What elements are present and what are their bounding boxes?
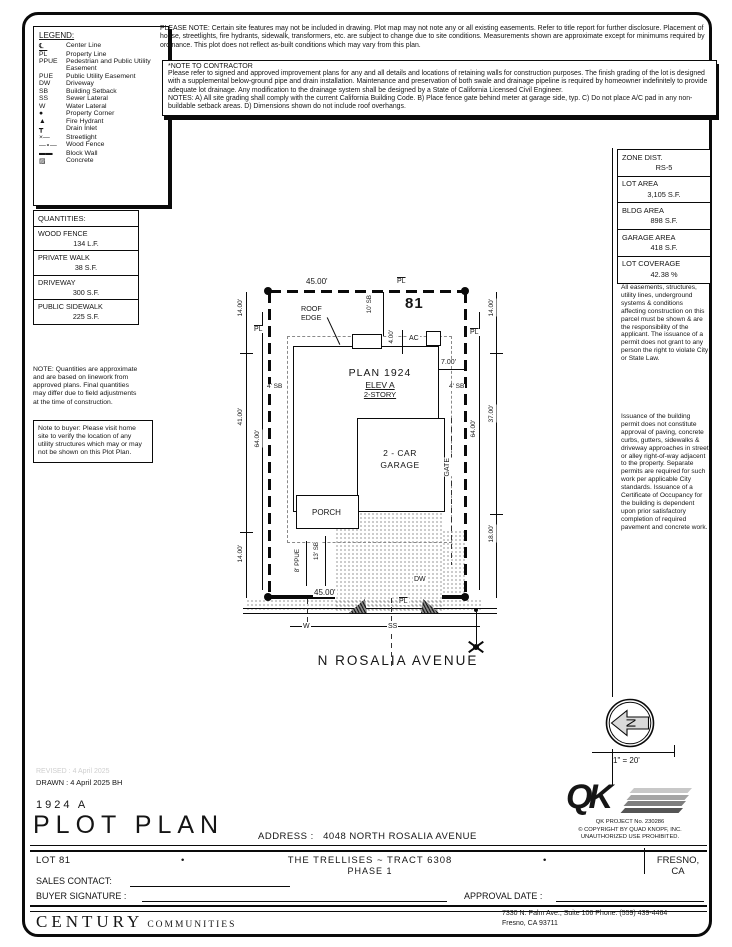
dim-sb-top: 10' SB xyxy=(366,295,374,313)
contractor-note-body: Please refer to signed and approved impr… xyxy=(168,70,711,95)
dim-tick xyxy=(240,353,253,354)
water-label: W xyxy=(302,623,311,630)
dim-top-width: 45.00' xyxy=(305,278,329,286)
legend-item: DWDriveway xyxy=(39,80,163,87)
fire-hydrant-icon: ▲ xyxy=(39,118,64,125)
plan-label: PLAN 1924 xyxy=(330,367,430,379)
dim-tick xyxy=(490,353,503,354)
property-line-north xyxy=(270,290,466,293)
zoning-row: LOT AREA3,105 S.F. xyxy=(618,177,710,204)
scale-bar xyxy=(592,752,674,753)
sheet-title: PLOT PLAN xyxy=(33,811,224,840)
dim-bottom-width: 45.00' xyxy=(313,589,337,597)
quantity-row: PRIVATE WALK38 S.F. xyxy=(34,250,138,274)
address-value: 4048 NORTH ROSALIA AVENUE xyxy=(323,831,477,842)
garage-label: 2 - CAR GARAGE xyxy=(357,448,443,472)
legend-box: LEGEND: ℄Center Line PLProperty Line PPU… xyxy=(33,26,169,206)
dim-west-inner: 64.00' xyxy=(254,430,263,448)
quantity-row: PUBLIC SIDEWALK225 S.F. xyxy=(34,299,138,323)
legend-item: ℄Center Line xyxy=(39,42,163,50)
buyer-signature-blank xyxy=(142,891,447,902)
dim-line-ac-offset xyxy=(402,330,403,354)
streetlight-icon: ×— xyxy=(39,134,64,141)
story-label: 2-STORY xyxy=(330,390,430,399)
dim-line-ppue xyxy=(306,541,307,586)
approval-date-blank xyxy=(556,891,704,902)
contractor-note-title: *NOTE TO CONTRACTOR xyxy=(168,63,711,70)
pue-abbr: PUE xyxy=(39,73,64,80)
block-wall-icon: ▬▬ xyxy=(39,150,64,157)
address-line: ADDRESS : 4048 NORTH ROSALIA AVENUE xyxy=(258,831,477,842)
qk-copyright: © COPYRIGHT BY QUAD KNOPF, INC. xyxy=(552,827,708,833)
dim-west-1: 14.00' xyxy=(237,299,246,317)
north-letter: N xyxy=(624,718,639,727)
dim-sb-right: 4' SB xyxy=(448,384,465,391)
legend-item: ▲Fire Hydrant xyxy=(39,118,163,125)
please-note-text: PLEASE NOTE: Certain site features may n… xyxy=(160,25,706,50)
north-arrow-compass: N xyxy=(604,697,656,749)
pl-label-east: PL xyxy=(469,329,480,336)
ppue-abbr: PPUE xyxy=(39,58,64,72)
gate-line xyxy=(451,418,452,565)
builder-address-line1: 7330 N. Palm Ave., Suite 106 Phone: (559… xyxy=(502,909,667,919)
elevation-label: ELEV A xyxy=(330,380,430,390)
separator-bullet: • xyxy=(543,855,546,866)
legend-item: ┳Drain Inlet xyxy=(39,125,163,133)
permit-note: Issuance of the building permit does not… xyxy=(621,413,709,532)
dim-tick xyxy=(240,532,253,533)
contractor-note-box: *NOTE TO CONTRACTOR Please refer to sign… xyxy=(162,60,717,116)
plot-plan-sheet: LEGEND: ℄Center Line PLProperty Line PPU… xyxy=(0,0,732,947)
scale-label: 1" = 20' xyxy=(612,757,641,765)
dim-east-3: 18.00' xyxy=(488,525,497,543)
legend-item: PUEPublic Utility Easement xyxy=(39,73,163,80)
lot-label: LOT 81 xyxy=(36,855,71,866)
zoning-row: LOT COVERAGE42.38 % xyxy=(618,257,710,283)
property-line-east xyxy=(464,292,467,598)
builder-name: CENTURY COMMUNITIES xyxy=(36,912,236,932)
driveway-label: DW xyxy=(413,576,427,583)
builder-address: 7330 N. Palm Ave., Suite 106 Phone: (559… xyxy=(502,909,667,929)
utility-line xyxy=(290,626,480,627)
legend-item: —∘—Wood Fence xyxy=(39,141,163,149)
phase-label: PHASE 1 xyxy=(240,866,500,876)
contractor-note-list: NOTES: A) All site grading shall comply … xyxy=(168,95,711,112)
gate-label: GATE xyxy=(443,458,452,477)
streetlight-symbol xyxy=(466,608,486,656)
legend-item: PPUEPedestrian and Public Utility Easeme… xyxy=(39,58,163,72)
pl-label-south: PL xyxy=(398,598,409,605)
legend-title: LEGEND: xyxy=(39,31,163,40)
pl-label-west: PL xyxy=(253,326,264,333)
city-cell-divider xyxy=(644,848,645,874)
dim-line-front-setback xyxy=(383,292,384,336)
property-corner-nw xyxy=(264,287,272,295)
porch-label: PORCH xyxy=(296,508,357,517)
easements-note: All easements, structures, utility lines… xyxy=(621,284,709,363)
roof-edge-label: ROOF EDGE xyxy=(300,304,323,322)
legend-item: WWater Lateral xyxy=(39,103,163,110)
property-corner-icon: ● xyxy=(39,110,64,117)
lot-number: 81 xyxy=(404,296,425,311)
zoning-row: ZONE DIST.RS-5 xyxy=(618,150,710,177)
title-rule xyxy=(30,845,707,852)
qk-logo-text: QK xyxy=(566,778,609,817)
drain-inlet-icon: ┳ xyxy=(39,125,64,133)
roof-projection xyxy=(352,334,382,349)
address-label: ADDRESS : xyxy=(258,831,314,842)
revised-date: REVISED : 4 April 2025 xyxy=(36,768,110,775)
legend-item: SBBuilding Setback xyxy=(39,88,163,95)
legend-item: ▬▬Block Wall xyxy=(39,150,163,157)
centerline-icon: ℄ xyxy=(39,42,64,50)
zoning-row: BLDG AREA898 S.F. xyxy=(618,203,710,230)
dim-ac-offset: 4.00' xyxy=(388,330,396,343)
qk-logo-block: QK QK PROJECT No. 230286 © COPYRIGHT BY … xyxy=(552,786,708,845)
separator-bullet: • xyxy=(181,855,184,866)
zoning-table: ZONE DIST.RS-5 LOT AREA3,105 S.F. BLDG A… xyxy=(617,149,711,284)
city-label: FRESNO, CA xyxy=(649,855,707,877)
property-corner-ne xyxy=(461,287,469,295)
builder-name-suffix: COMMUNITIES xyxy=(147,920,236,930)
legend-item: ●Property Corner xyxy=(39,110,163,117)
property-line-west xyxy=(268,292,271,598)
property-line-icon: PL xyxy=(39,51,64,58)
qk-stripe xyxy=(627,795,689,800)
concrete-icon: ▨ xyxy=(39,157,64,165)
setback-abbr: SB xyxy=(39,88,64,95)
dim-line-sb-front xyxy=(325,536,326,586)
sewer-label: SS xyxy=(387,623,398,630)
scale-bar-tick xyxy=(674,745,675,757)
dim-line-west-inner xyxy=(262,312,263,590)
street-name: N ROSALIA AVENUE xyxy=(296,653,500,668)
dim-garage-offset: 7.00' xyxy=(440,359,457,366)
quantities-title: QUANTITIES: xyxy=(34,211,138,226)
qk-project-number: QK PROJECT No. 230286 xyxy=(552,819,708,825)
legend-item: PLProperty Line xyxy=(39,51,163,58)
curb-line xyxy=(243,608,497,609)
builder-name-main: CENTURY xyxy=(36,912,143,931)
dim-line-east-inner xyxy=(479,312,480,590)
quantities-table: QUANTITIES: WOOD FENCE134 L.F. PRIVATE W… xyxy=(33,210,139,325)
legend-item: ▨Concrete xyxy=(39,157,163,165)
sales-contact-blank xyxy=(130,876,290,887)
water-lateral-line xyxy=(307,599,308,624)
legend-item: ×—Streetlight xyxy=(39,134,163,141)
dim-line-east xyxy=(496,292,497,598)
dim-line-garage-offset xyxy=(438,369,466,370)
pl-label-north: PL xyxy=(396,278,407,285)
qk-stripe xyxy=(630,788,692,793)
property-corner-se xyxy=(461,593,469,601)
ac-label: AC xyxy=(408,335,420,342)
driveway-abbr: DW xyxy=(39,80,64,87)
property-corner-sw xyxy=(264,593,272,601)
sewer-abbr: SS xyxy=(39,95,64,102)
dim-east-inner: 64.00' xyxy=(470,420,479,438)
quantities-note: NOTE: Quantities are approximate and are… xyxy=(33,366,143,407)
dim-west-2: 41.00' xyxy=(237,408,246,426)
approval-date-label: APPROVAL DATE : xyxy=(464,891,542,901)
dim-tick xyxy=(490,514,503,515)
qk-stripe xyxy=(624,801,686,806)
dim-west-3: 14.00' xyxy=(237,545,246,563)
gutter-line xyxy=(243,613,497,614)
dim-east-2: 37.00' xyxy=(488,405,497,423)
quantity-row: WOOD FENCE134 L.F. xyxy=(34,226,138,250)
quantity-row: DRIVEWAY300 S.F. xyxy=(34,275,138,299)
drawn-date: DRAWN : 4 April 2025 BH xyxy=(36,778,122,787)
qk-stripe xyxy=(621,808,683,813)
buyer-signature-label: BUYER SIGNATURE : xyxy=(36,891,126,901)
dim-east-1: 14.00' xyxy=(488,299,497,317)
buyer-note-box: Note to buyer: Please visit home site to… xyxy=(33,420,153,463)
tract-name: THE TRELLISES ~ TRACT 6308 xyxy=(240,855,500,866)
wood-fence-icon: —∘— xyxy=(39,141,64,149)
zoning-row: GARAGE AREA418 S.F. xyxy=(618,230,710,257)
dim-sb-front: 13' SB xyxy=(313,542,321,560)
ac-unit xyxy=(426,331,441,346)
qk-unauthorized: UNAUTHORIZED USE PROHIBITED. xyxy=(552,834,708,840)
builder-address-line2: Fresno, CA 93711 xyxy=(502,919,667,929)
legend-item: SSSewer Lateral xyxy=(39,95,163,102)
sales-contact-label: SALES CONTACT: xyxy=(36,876,112,886)
dim-sb-left: 4' SB xyxy=(266,384,283,391)
water-abbr: W xyxy=(39,103,64,110)
dim-ppue: 8' PPUE xyxy=(294,549,302,572)
plan-number: 1924 A xyxy=(36,799,88,811)
dim-line-west xyxy=(246,292,247,598)
